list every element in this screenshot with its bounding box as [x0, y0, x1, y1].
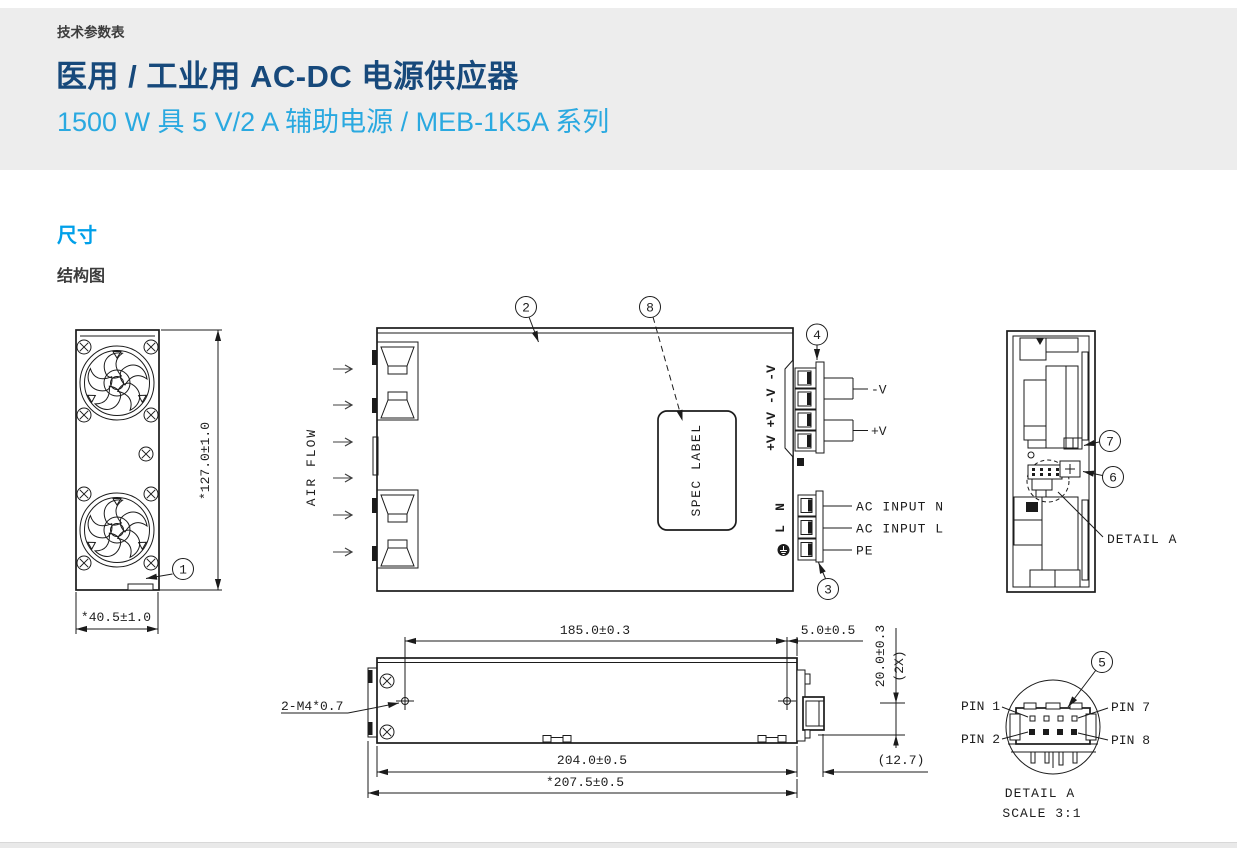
dim-207: *207.5±0.5: [368, 741, 797, 798]
dim-20: 20.0±0.3 (2X): [818, 625, 907, 748]
detail-a-drawing: 5 PIN 1 PIN 2 PIN 7 PIN 8 DETAIL A SCALE…: [961, 652, 1150, 822]
detail-a-title: DETAIL A: [1005, 786, 1075, 801]
balloon-3: 3: [818, 563, 839, 600]
fan-module-top: [377, 342, 418, 420]
ac-input-l-label: AC INPUT L: [856, 522, 944, 537]
input-l-marking: L: [773, 525, 788, 533]
balloon-8: 8: [640, 297, 683, 422]
dim-20-text: 20.0±0.3: [873, 625, 888, 687]
bottom-view-drawing: 185.0±0.3 5.0±0.5 20.0±0.3 (2X) 204.0±0.…: [281, 623, 928, 798]
dim-5: 5.0±0.5: [787, 623, 863, 656]
subsection-heading-structure: 结构图: [57, 262, 105, 286]
pe-label: PE: [856, 544, 874, 559]
balloon-8-number: 8: [646, 301, 654, 316]
spec-label-text: SPEC LABEL: [689, 423, 704, 516]
pos-output-label: +V: [871, 424, 887, 439]
pin-2-label: PIN 2: [961, 732, 1000, 747]
mechanical-drawing: 1 *127.0±1.0 *40.5±1.0: [0, 290, 1237, 835]
page-bottom-divider: [0, 842, 1237, 848]
spec-label: SPEC LABEL: [658, 411, 736, 530]
balloon-2: 2: [516, 297, 539, 343]
page-title: 医用 / 工业用 AC-DC 电源供应器: [56, 51, 519, 96]
fan-module-bottom: [377, 490, 418, 568]
pin-8-label: PIN 8: [1111, 733, 1150, 748]
dim-207-text: *207.5±0.5: [546, 775, 624, 790]
ac-input-n-label: AC INPUT N: [856, 500, 944, 515]
m4-note-text: 2-M4*0.7: [281, 699, 343, 714]
balloon-2-number: 2: [522, 301, 530, 316]
io-connector-side: [797, 670, 824, 741]
front-height-dim-text: *127.0±1.0: [198, 422, 213, 500]
section-heading-dimensions: 尺寸: [57, 219, 97, 248]
page-subtitle: 1500 W 具 5 V/2 A 辅助电源 / MEB-1K5A 系列: [57, 100, 609, 139]
neg-output-label: -V: [871, 383, 887, 398]
pin-1-label: PIN 1: [961, 699, 1000, 714]
balloon-7-number: 7: [1106, 435, 1114, 450]
balloon-1: 1: [146, 559, 194, 580]
dim-204: 204.0±0.5: [377, 746, 797, 777]
dim-5-text: 5.0±0.5: [801, 623, 856, 638]
front-height-dimension: *127.0±1.0: [159, 330, 222, 590]
front-view-drawing: 1 *127.0±1.0 *40.5±1.0: [76, 330, 222, 634]
side-detail-a-label: DETAIL A: [1107, 532, 1177, 547]
air-flow-label: AIR FLOW: [304, 428, 319, 506]
input-terminal-block: N L AC INPUT N AC INPUT L PE: [773, 491, 944, 562]
output-terminal-block: +V +V -V -V: [764, 360, 824, 466]
dim-185: 185.0±0.3: [405, 623, 787, 695]
front-width-dimension: *40.5±1.0: [76, 592, 158, 634]
balloon-5-number: 5: [1098, 656, 1106, 671]
balloon-3-number: 3: [824, 583, 832, 598]
output-terminal-marking: +V +V -V -V: [764, 365, 779, 451]
top-view-drawing: AIR FLOW 2 8 SPEC LABEL +V +V -V -V: [304, 297, 944, 600]
dim-127-text: (12.7): [878, 753, 925, 768]
balloon-1-number: 1: [179, 563, 187, 578]
side-view-drawing: 7 6 DETAIL A: [1007, 331, 1177, 592]
pin-7-label: PIN 7: [1111, 700, 1150, 715]
dim-204-text: 204.0±0.5: [557, 753, 627, 768]
m4-note: 2-M4*0.7: [281, 699, 399, 714]
output-wires: -V +V: [824, 378, 887, 441]
ground-symbol-icon: [778, 544, 790, 556]
detail-a-scale: SCALE 3:1: [1002, 806, 1081, 821]
balloon-6-number: 6: [1109, 471, 1117, 486]
input-n-marking: N: [773, 503, 788, 511]
front-width-dim-text: *40.5±1.0: [81, 610, 151, 625]
air-flow-arrows: [333, 369, 352, 552]
dim-185-text: 185.0±0.3: [560, 623, 630, 638]
eyebrow-label: 技术参数表: [57, 21, 125, 41]
dim-2x-text: (2X): [892, 650, 907, 681]
balloon-4-number: 4: [813, 328, 821, 343]
balloon-4: 4: [807, 324, 828, 360]
dim-127: (12.7): [772, 734, 928, 777]
